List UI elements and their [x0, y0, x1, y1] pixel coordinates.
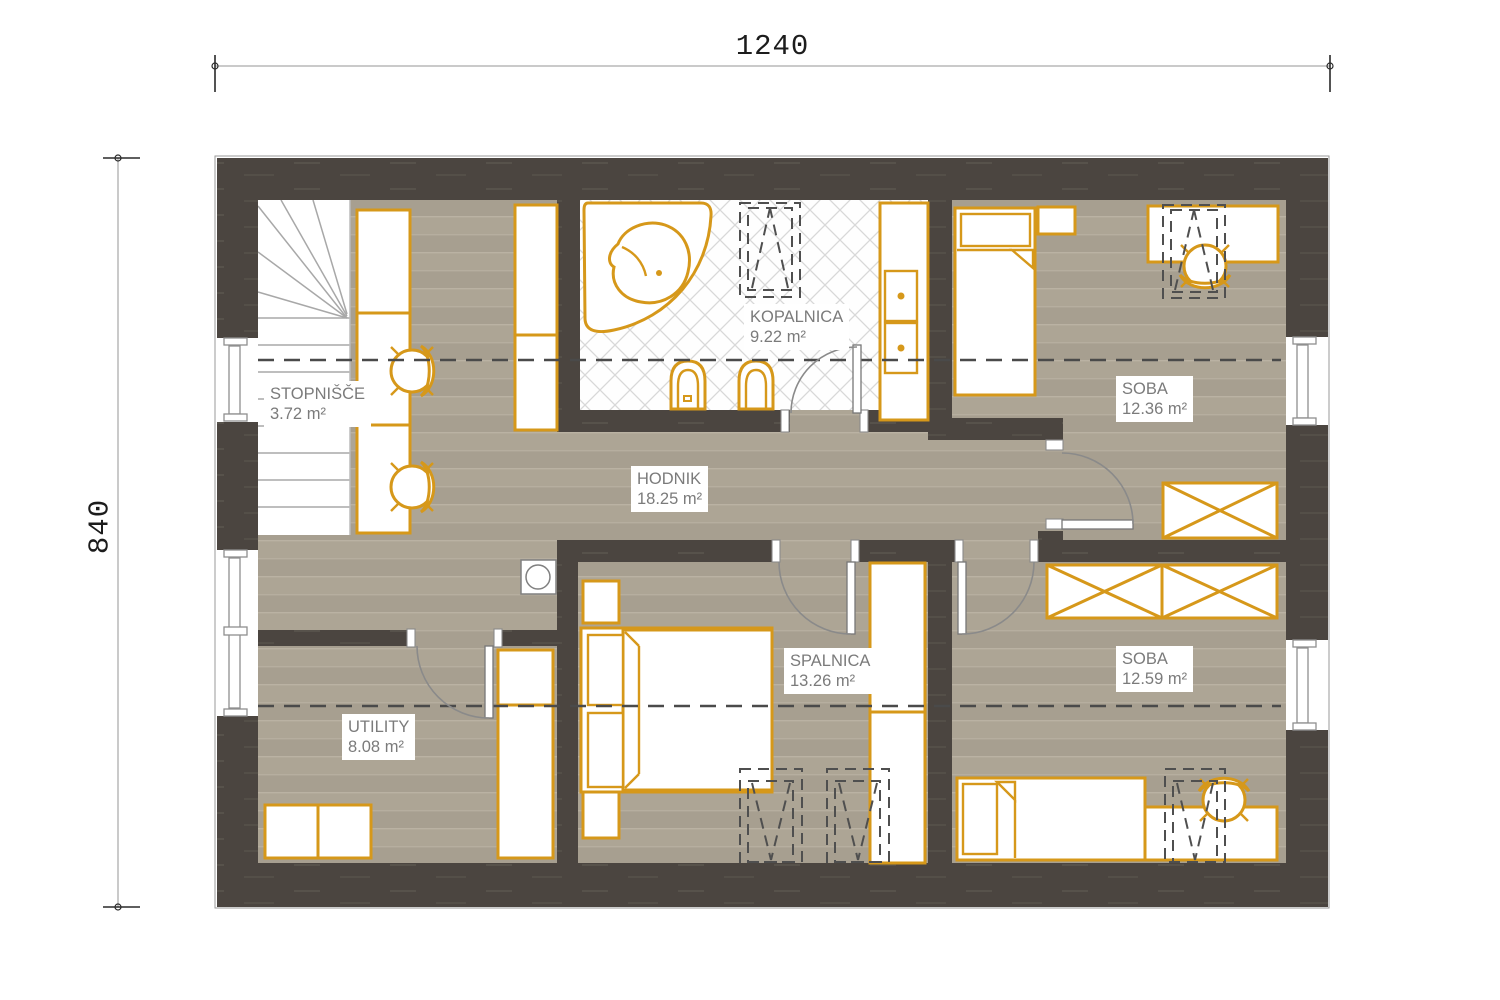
room-label-stopnisce: STOPNIŠČE 3.72 m²	[264, 381, 371, 427]
window-right-2	[1286, 640, 1328, 730]
room-name: HODNIK	[637, 469, 702, 489]
room-name: UTILITY	[348, 717, 409, 737]
wall-right	[1286, 158, 1328, 907]
room-area: 13.26 m²	[790, 671, 870, 691]
wall-bath-bottom-a	[557, 410, 790, 432]
washer	[265, 805, 318, 858]
wall-bottom	[217, 863, 1328, 907]
window-left-1	[217, 338, 258, 422]
room-name: SPALNICA	[790, 651, 870, 671]
utility-cabinet	[498, 650, 553, 858]
desk-chair	[1180, 245, 1230, 288]
room-label-soba-top: SOBA 12.36 m²	[1116, 376, 1193, 422]
room-label-soba-bottom: SOBA 12.59 m²	[1116, 646, 1193, 692]
wall-utility-stub	[494, 630, 557, 646]
wall-spalnica-right	[928, 562, 952, 863]
desk-chair	[391, 462, 434, 512]
window-right-1	[1286, 337, 1328, 425]
desk-chair	[391, 346, 434, 396]
wall-utility-top	[258, 630, 415, 646]
window-left-2	[217, 550, 258, 716]
wall-mid-a	[852, 540, 963, 562]
dimension-width-label: 1240	[215, 30, 1330, 63]
room-name: STOPNIŠČE	[270, 384, 365, 404]
floor-plan-page: 1240 840 STOPNIŠČE 3.72 m² KOPALNICA 9.2…	[0, 0, 1500, 1000]
room-area: 3.72 m²	[270, 404, 365, 424]
floor-plan-drawing	[0, 0, 1500, 1000]
staircase	[258, 200, 350, 535]
room-name: SOBA	[1122, 649, 1187, 669]
wall-top	[217, 158, 1328, 200]
room-area: 12.36 m²	[1122, 399, 1187, 419]
nightstand	[583, 581, 619, 623]
room-area: 8.08 m²	[348, 737, 409, 757]
wall-spalnica-top	[557, 540, 780, 562]
wall-spalnica-left	[557, 562, 578, 863]
wall-bath-right	[928, 200, 952, 440]
toilet	[739, 361, 773, 409]
room-area: 9.22 m²	[750, 327, 843, 347]
pillow	[961, 214, 1030, 246]
room-name: KOPALNICA	[750, 307, 843, 327]
hall-cabinet	[515, 205, 557, 430]
wall-soba-top-bottom	[952, 418, 1063, 440]
wall-left	[217, 158, 258, 907]
nightstand	[583, 792, 619, 838]
dryer	[318, 805, 371, 858]
room-name: SOBA	[1122, 379, 1187, 399]
wall-bath-left	[557, 200, 580, 432]
pillow	[963, 784, 997, 854]
room-area: 18.25 m²	[637, 489, 702, 509]
pillow	[588, 713, 623, 787]
nightstand	[1038, 207, 1075, 234]
chimney-shaft	[521, 560, 556, 594]
room-area: 12.59 m²	[1122, 669, 1187, 689]
pillow	[588, 635, 623, 705]
room-label-spalnica: SPALNICA 13.26 m²	[784, 648, 876, 694]
room-label-hodnik: HODNIK 18.25 m²	[631, 466, 708, 512]
dimension-height-label: 840	[84, 486, 117, 568]
room-label-utility: UTILITY 8.08 m²	[342, 714, 415, 760]
wall-mid-b	[1038, 540, 1286, 562]
room-label-kopalnica: KOPALNICA 9.22 m²	[744, 304, 849, 350]
bathtub-drain	[656, 270, 662, 276]
